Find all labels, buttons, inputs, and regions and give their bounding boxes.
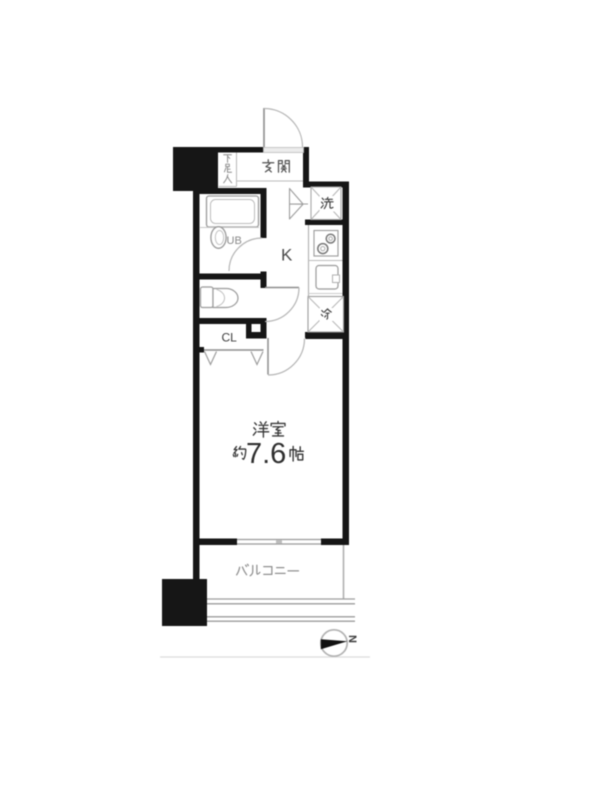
svg-text:CL: CL [222,331,238,345]
svg-text:K: K [281,246,293,265]
svg-text:7.6: 7.6 [246,438,286,470]
svg-text:N: N [346,635,358,643]
svg-text:UB: UB [227,235,242,247]
